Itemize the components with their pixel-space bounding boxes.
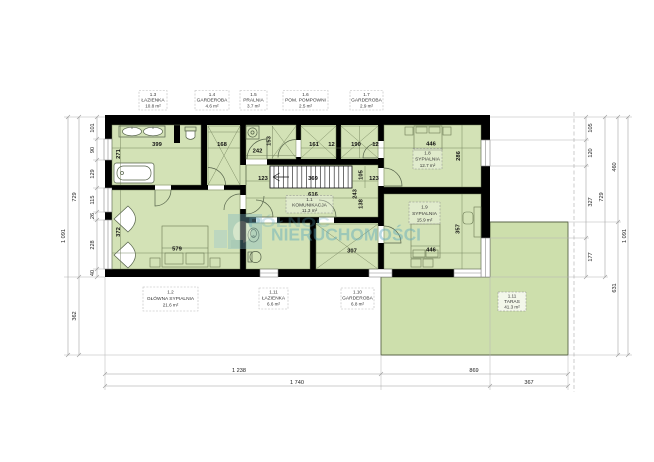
- svg-text:399: 399: [152, 142, 162, 148]
- svg-text:15.9 m²: 15.9 m²: [417, 218, 433, 223]
- svg-text:729: 729: [72, 192, 78, 201]
- svg-text:367: 367: [524, 380, 533, 386]
- svg-text:1.2: 1.2: [167, 290, 174, 295]
- svg-text:1.5: 1.5: [250, 92, 257, 97]
- svg-text:1.10: 1.10: [353, 290, 362, 295]
- svg-text:40: 40: [90, 270, 96, 276]
- svg-text:153: 153: [267, 135, 273, 145]
- svg-text:286: 286: [456, 150, 462, 160]
- svg-text:177: 177: [588, 252, 594, 261]
- svg-text:243: 243: [353, 188, 359, 198]
- svg-text:242: 242: [253, 149, 263, 155]
- svg-text:1.11: 1.11: [508, 293, 517, 298]
- svg-text:1.1: 1.1: [306, 197, 313, 202]
- svg-text:1.3: 1.3: [150, 92, 157, 97]
- svg-text:307: 307: [347, 249, 357, 255]
- svg-text:271: 271: [116, 148, 122, 158]
- svg-text:168: 168: [217, 142, 227, 148]
- svg-text:41.3 m²: 41.3 m²: [504, 305, 520, 310]
- svg-text:1.7: 1.7: [363, 92, 370, 97]
- svg-text:NIERUCHOMOŚCI: NIERUCHOMOŚCI: [271, 224, 421, 245]
- svg-text:1.11: 1.11: [269, 290, 278, 295]
- svg-text:6.8 m²: 6.8 m²: [351, 301, 364, 306]
- svg-text:1 091: 1 091: [61, 229, 67, 243]
- svg-text:123: 123: [258, 176, 268, 182]
- svg-text:120: 120: [588, 148, 594, 157]
- svg-text:327: 327: [588, 197, 594, 206]
- svg-text:1.6: 1.6: [302, 92, 309, 97]
- svg-text:12: 12: [328, 142, 334, 148]
- svg-text:369: 369: [308, 176, 318, 182]
- svg-text:869: 869: [469, 368, 478, 374]
- svg-text:11.3 m²: 11.3 m²: [302, 208, 318, 213]
- svg-text:460: 460: [612, 162, 618, 171]
- svg-text:228: 228: [90, 240, 96, 249]
- svg-text:101: 101: [90, 123, 96, 132]
- svg-text:21.6 m²: 21.6 m²: [163, 302, 179, 307]
- svg-text:579: 579: [172, 247, 182, 253]
- svg-text:123: 123: [369, 176, 379, 182]
- svg-text:GŁÓWNA SYPIALNIA: GŁÓWNA SYPIALNIA: [147, 295, 195, 302]
- svg-text:4.6 m²: 4.6 m²: [205, 103, 218, 108]
- svg-text:1 238: 1 238: [232, 368, 246, 374]
- svg-text:138: 138: [359, 198, 365, 208]
- svg-text:1.4: 1.4: [209, 92, 216, 97]
- svg-text:105: 105: [588, 123, 594, 132]
- svg-text:26: 26: [90, 213, 96, 219]
- svg-text:161: 161: [309, 142, 319, 148]
- svg-text:129: 129: [90, 169, 96, 178]
- svg-text:729: 729: [599, 192, 605, 201]
- svg-text:1 740: 1 740: [290, 380, 304, 386]
- svg-text:90: 90: [90, 147, 96, 153]
- svg-text:2.9 m²: 2.9 m²: [360, 103, 373, 108]
- svg-text:1.9: 1.9: [421, 205, 428, 210]
- svg-text:362: 362: [72, 311, 78, 320]
- svg-text:1 091: 1 091: [622, 229, 628, 243]
- svg-text:105: 105: [359, 169, 365, 179]
- svg-text:357: 357: [456, 224, 462, 234]
- svg-text:631: 631: [612, 283, 618, 292]
- svg-text:115: 115: [90, 196, 96, 205]
- svg-text:12: 12: [372, 142, 378, 148]
- svg-text:SYPIALNIA: SYPIALNIA: [415, 157, 441, 163]
- svg-text:190: 190: [351, 142, 361, 148]
- svg-text:SYPIALNIA: SYPIALNIA: [412, 211, 438, 217]
- svg-text:1.8: 1.8: [424, 151, 431, 156]
- svg-text:10.8 m²: 10.8 m²: [145, 103, 161, 108]
- svg-text:12.7 m²: 12.7 m²: [420, 163, 436, 168]
- svg-text:6.6 m²: 6.6 m²: [267, 301, 280, 306]
- svg-text:2.5 m²: 2.5 m²: [299, 103, 312, 108]
- svg-text:3.7 m²: 3.7 m²: [247, 103, 260, 108]
- svg-text:372: 372: [116, 227, 122, 237]
- svg-text:446: 446: [426, 248, 436, 254]
- svg-text:446: 446: [426, 142, 436, 148]
